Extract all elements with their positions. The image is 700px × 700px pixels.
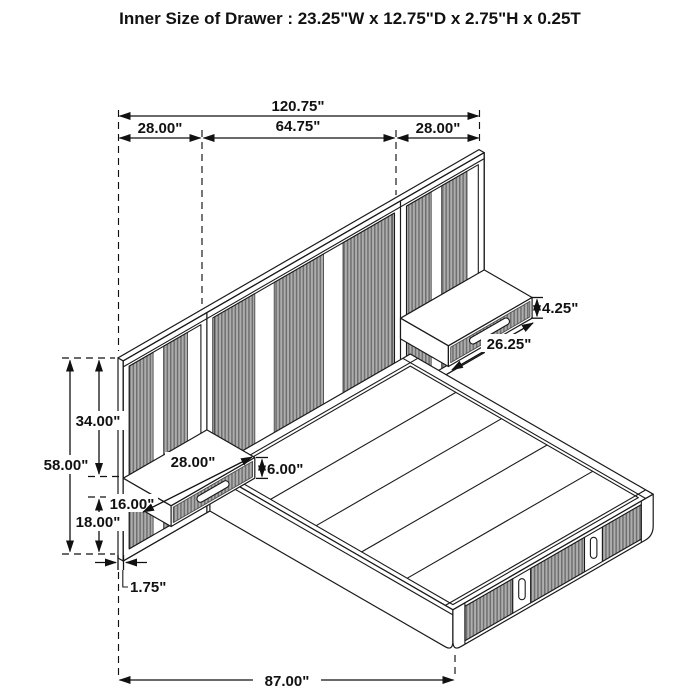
bed-dimension-diagram: 120.75" 28.00" 64.75" 28.00" 58.00" 34.0…	[0, 0, 700, 700]
dim-drawer-height: 4.25"	[531, 298, 578, 319]
dim-floor-clearance-label: 18.00"	[76, 514, 121, 531]
dim-total-width-label: 120.75"	[272, 98, 325, 115]
dim-drawer-width-label: 26.25"	[487, 336, 532, 353]
dim-left-section-label: 28.00"	[138, 120, 183, 137]
dim-nightstand-depth: 16.00"	[106, 494, 158, 513]
dim-right-section-label: 28.00"	[416, 120, 461, 137]
page-title: Inner Size of Drawer : 23.25"W x 12.75"D…	[119, 9, 581, 28]
dim-bed-length-label: 87.00"	[265, 673, 310, 690]
diagram-svg: 120.75" 28.00" 64.75" 28.00" 58.00" 34.0…	[0, 0, 700, 700]
dim-top-to-nightstand-label: 34.00"	[76, 413, 121, 430]
dim-center-section-label: 64.75"	[276, 118, 321, 135]
dim-drawer-height-label: 4.25"	[542, 300, 578, 317]
dim-panel-thickness: 1.75"	[95, 555, 166, 596]
dim-nightstand-height-label: 6.00"	[267, 461, 303, 478]
dim-panel-thickness-label: 1.75"	[130, 579, 166, 596]
dim-nightstand-width-label: 28.00"	[171, 454, 216, 471]
footboard-handle-left-icon	[519, 579, 526, 600]
dim-panel-height-label: 58.00"	[44, 457, 89, 474]
dim-nightstand-depth-label: 16.00"	[110, 496, 155, 513]
footboard-handle-right-icon	[590, 537, 597, 558]
